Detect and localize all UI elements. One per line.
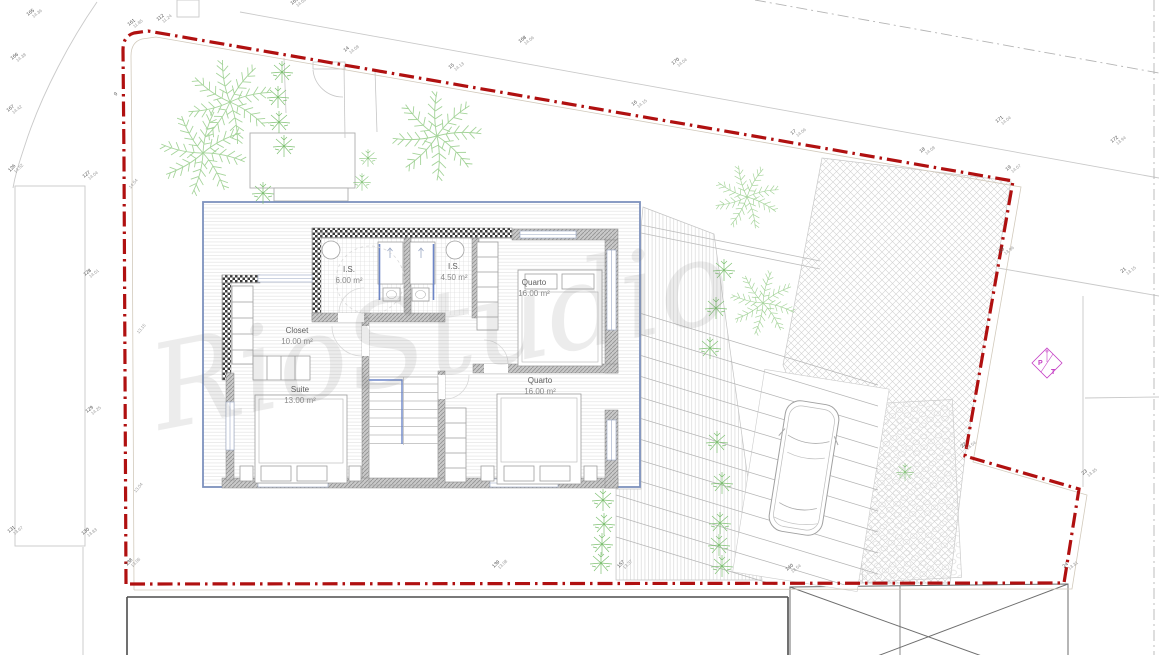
pt-letter-t: T (1051, 369, 1056, 376)
entry-and-outbuilding (250, 58, 377, 201)
pt-letter-p: P (1038, 360, 1043, 367)
centerline-top-right (755, 0, 1159, 73)
survey-point-label: 9 (113, 91, 120, 97)
survey-point-label: 12914.25 (85, 401, 103, 418)
bed-quarto2 (481, 394, 597, 484)
gate-swing-arc (313, 70, 343, 97)
road-curve-left (13, 2, 97, 188)
sink-1 (322, 241, 340, 259)
survey-point-label: 14.54 (128, 177, 139, 189)
road-edge-top (240, 12, 1159, 178)
survey-point-label: 16514.36 (26, 4, 44, 21)
survey-point-label: 12714.04 (82, 166, 100, 183)
x-building-outline (790, 584, 1068, 655)
survey-point-label: 16614.38 (10, 48, 28, 65)
survey-point-label: 17114.04 (995, 111, 1013, 128)
survey-point-label: 16814.06 (518, 31, 536, 48)
survey-point-label: 13.04 (133, 481, 144, 493)
survey-point-label: 13913.08 (491, 555, 509, 573)
left-parcel (15, 186, 85, 546)
outbuilding (250, 133, 355, 188)
quarto2-wardrobe (445, 408, 466, 482)
outbuilding-step (274, 188, 348, 201)
north-wall-checker (312, 228, 512, 238)
survey-point-label: 17213.94 (1110, 131, 1128, 148)
survey-point-label: 1814.08 (919, 141, 937, 158)
x-building-diagonals (790, 584, 1068, 655)
survey-point-label: 17014.04 (671, 53, 689, 70)
survey-point-label: 1514.13 (448, 57, 466, 74)
survey-point-label: 1914.07 (1005, 159, 1023, 176)
survey-point-label: 16914.08 (290, 0, 308, 10)
survey-point-label: 1714.06 (790, 123, 808, 140)
survey-point-label: 12614.52 (7, 159, 25, 177)
survey-point-label: 2113.15 (1120, 261, 1138, 278)
survey-point-label: 16714.42 (6, 100, 24, 117)
survey-point-label: 1614.15 (631, 94, 649, 111)
bottom-structures (127, 584, 1068, 655)
small-structure (177, 0, 199, 17)
survey-point-label: 16111.85 (127, 14, 145, 31)
survey-point-label: 1414.08 (343, 40, 361, 57)
site-plan-drawing: P T RioStudio I.S.6.00 m²I.S.4.50 m²Quar… (0, 0, 1159, 655)
site-plan-canvas: P T RioStudio I.S.6.00 m²I.S.4.50 m²Quar… (0, 0, 1159, 655)
survey-point-label: 11211.24 (156, 9, 174, 26)
sink-2 (446, 241, 464, 259)
pt-utility-marker: P T (1032, 348, 1062, 378)
survey-point-label: 13013.83 (81, 523, 99, 540)
right-parcel-line (998, 268, 1159, 296)
sidewalk-rect (127, 597, 788, 655)
